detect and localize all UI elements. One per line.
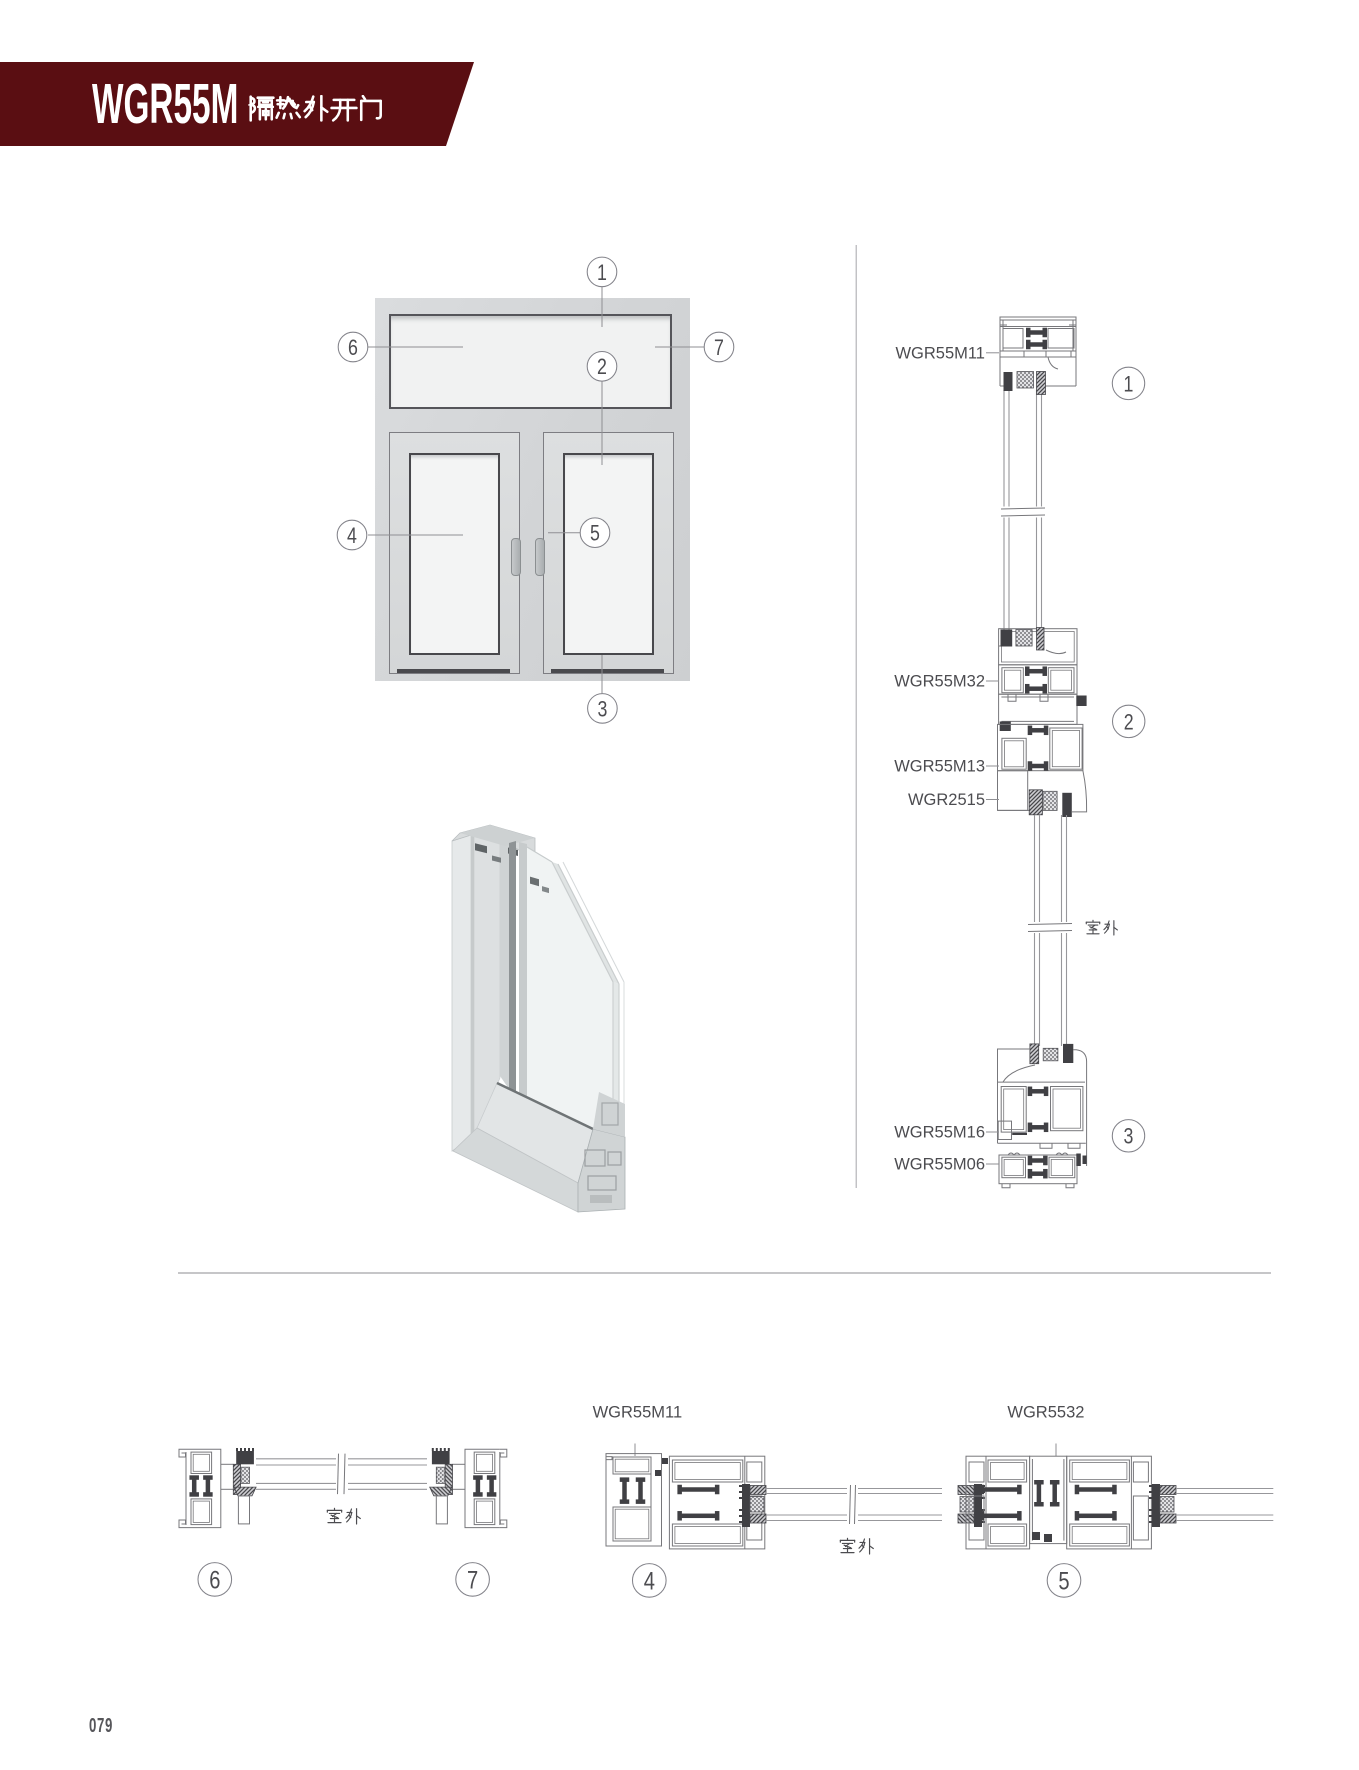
svg-text:WGR55M11: WGR55M11 (593, 1404, 683, 1422)
svg-text:6: 6 (209, 1566, 220, 1594)
svg-text:7: 7 (714, 335, 724, 360)
svg-text:5: 5 (590, 521, 600, 546)
svg-text:2: 2 (597, 354, 607, 379)
svg-text:4: 4 (644, 1567, 655, 1595)
svg-text:WGR5532: WGR5532 (1007, 1404, 1084, 1422)
svg-text:2: 2 (1124, 709, 1134, 734)
svg-text:WGR55M32: WGR55M32 (894, 673, 985, 691)
svg-text:7: 7 (467, 1566, 478, 1594)
svg-text:WGR55M06: WGR55M06 (894, 1156, 985, 1174)
svg-text:5: 5 (1058, 1567, 1069, 1595)
svg-text:1: 1 (597, 260, 607, 285)
svg-text:6: 6 (348, 335, 358, 360)
svg-text:1: 1 (1124, 371, 1134, 396)
svg-text:WGR55M11: WGR55M11 (895, 345, 985, 363)
svg-text:4: 4 (347, 523, 357, 548)
svg-text:WGR2515: WGR2515 (908, 791, 985, 809)
svg-text:3: 3 (1124, 1124, 1134, 1149)
svg-text:3: 3 (597, 696, 607, 721)
svg-text:WGR55M16: WGR55M16 (894, 1124, 985, 1142)
svg-text:WGR55M13: WGR55M13 (894, 758, 985, 776)
